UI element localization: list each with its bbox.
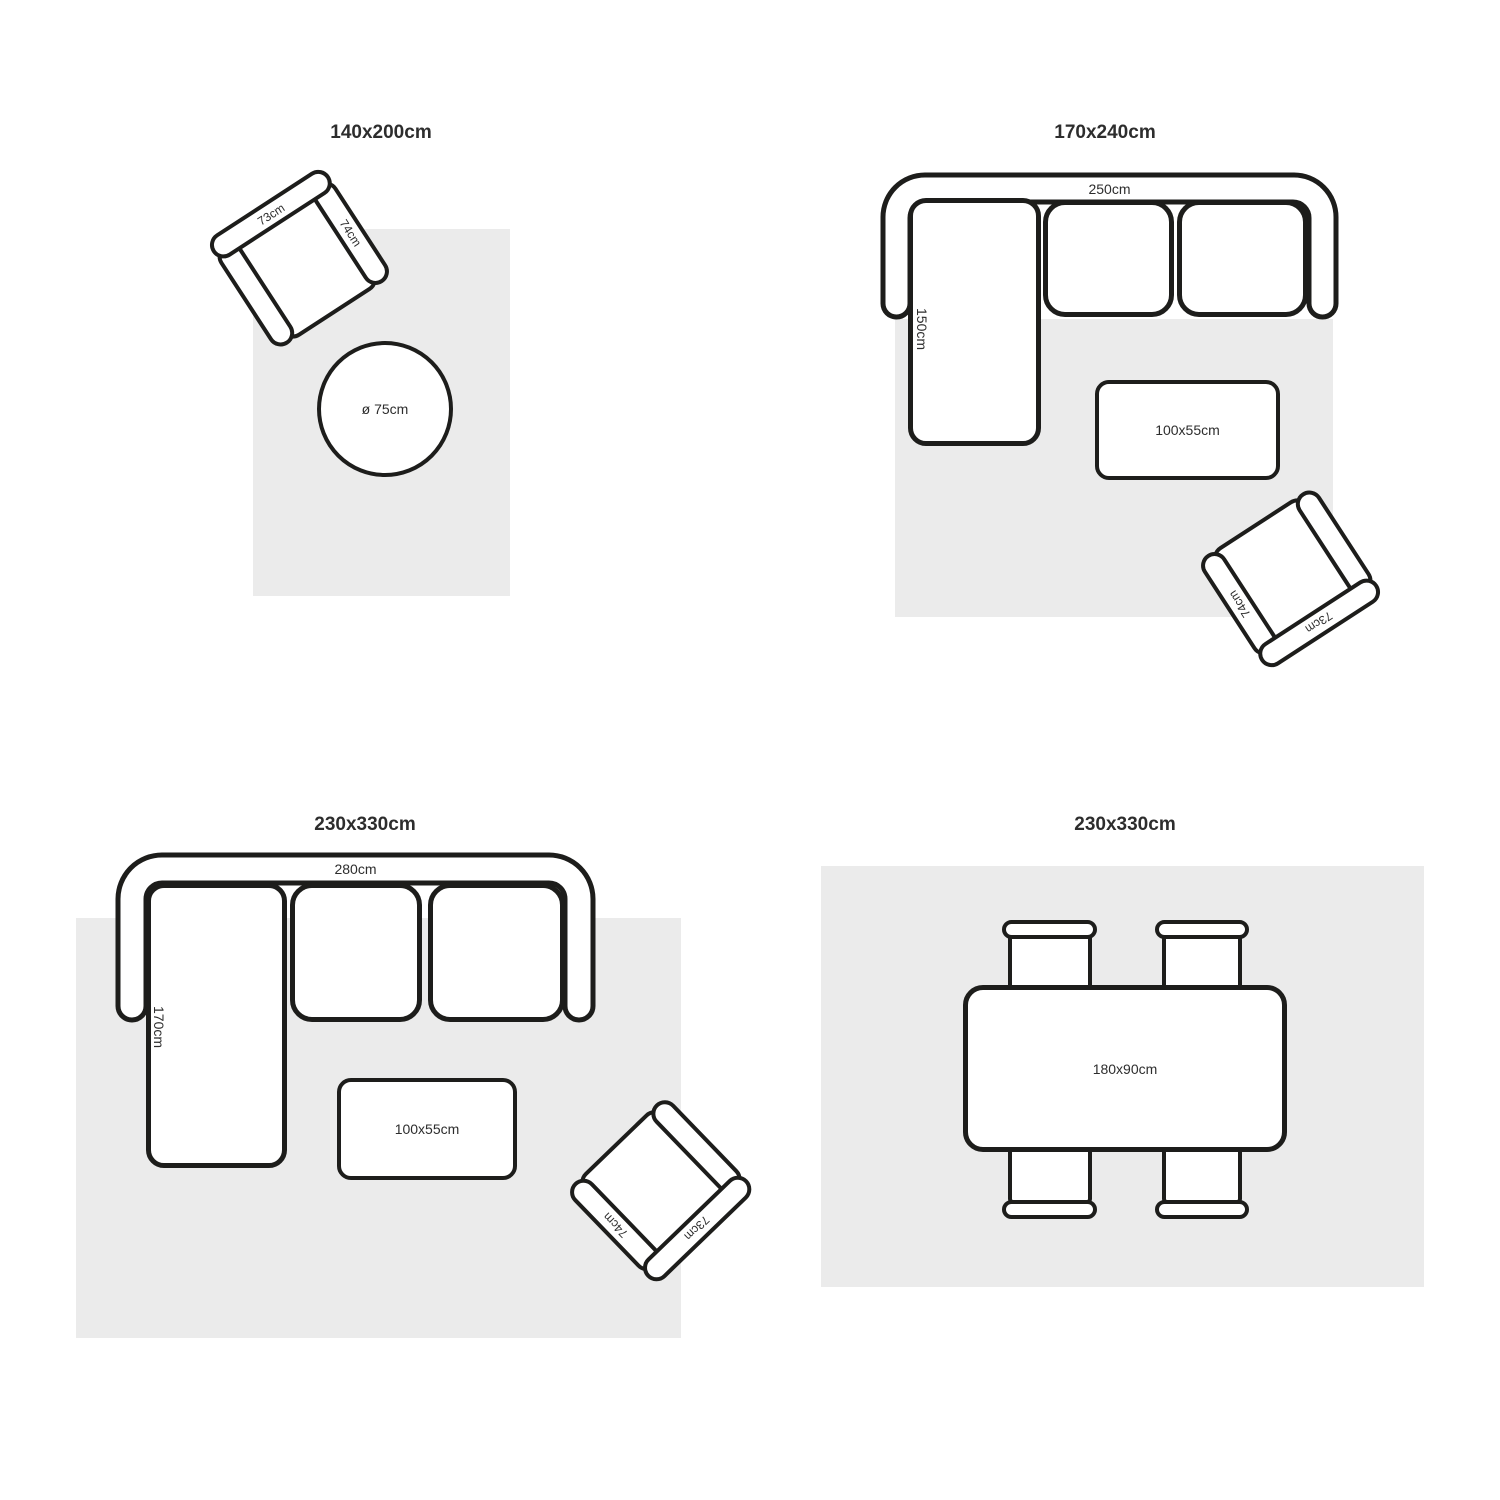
sofa-depth-label: 170cm	[151, 1006, 167, 1048]
sofa-chaise	[146, 883, 287, 1168]
sofa-seat-cushion	[428, 883, 565, 1022]
round-side-table: ø 75cm	[317, 341, 453, 477]
armchair-depth-label: 74cm	[1226, 588, 1252, 619]
dining-chair-back	[1002, 1200, 1097, 1219]
coffee-table: 100x55cm	[337, 1078, 517, 1180]
sofa-seat-cushion	[1177, 200, 1308, 317]
sofa-seat-cushion	[1043, 200, 1174, 317]
dining-table: 180x90cm	[963, 985, 1287, 1152]
quadrant-140x200: 140x200cm 74cm 73cm ø 75cm	[0, 0, 750, 750]
dining-table-size-label: 180x90cm	[1093, 1061, 1158, 1077]
armchair-width-label: 73cm	[682, 1214, 711, 1243]
quadrant-230x330-dining: 230x330cm 180x90cm	[750, 750, 1500, 1500]
dining-chair-back	[1155, 920, 1249, 939]
sofa-width-label: 280cm	[118, 855, 593, 883]
rug-size-title: 230x330cm	[314, 814, 415, 836]
rug-size-title: 140x200cm	[330, 122, 431, 144]
rug-size-title: 170x240cm	[1054, 122, 1155, 144]
quadrant-170x240: 170x240cm 250cm 150cm 100x55cm 74cm 73cm	[750, 0, 1500, 750]
sofa-depth-label: 150cm	[914, 308, 930, 350]
armchair-width-label: 73cm	[1304, 610, 1335, 636]
rug-size-guide: 140x200cm 74cm 73cm ø 75cm 170x240cm 250…	[0, 0, 1500, 1500]
dining-chair-back	[1155, 1200, 1249, 1219]
sofa-seat-cushion	[290, 883, 422, 1022]
quadrant-230x330-living: 230x330cm 280cm 170cm 100x55cm 74cm 73cm	[0, 750, 750, 1500]
coffee-table-size-label: 100x55cm	[1155, 422, 1220, 438]
coffee-table-size-label: 100x55cm	[395, 1121, 460, 1137]
dining-chair-back	[1002, 920, 1097, 939]
armchair-depth-label: 74cm	[338, 218, 364, 249]
coffee-table: 100x55cm	[1095, 380, 1280, 480]
round-table-diameter-label: ø 75cm	[362, 401, 409, 417]
rug-size-title: 230x330cm	[1074, 814, 1175, 836]
